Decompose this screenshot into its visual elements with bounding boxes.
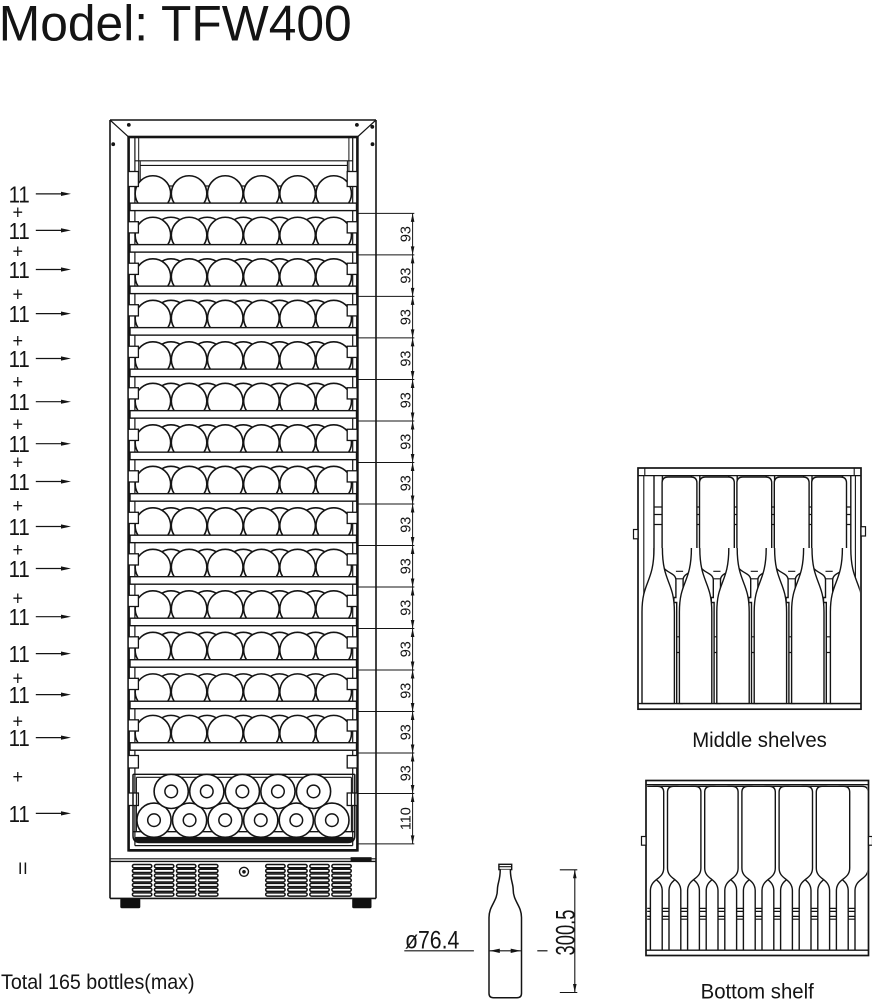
svg-text:93: 93 — [398, 600, 414, 616]
svg-text:93: 93 — [398, 392, 414, 408]
svg-text:Model: TFW400: Model: TFW400 — [0, 0, 352, 51]
svg-text:+: + — [13, 370, 24, 392]
svg-text:93: 93 — [398, 558, 414, 574]
svg-text:Total 165 bottles(max): Total 165 bottles(max) — [1, 970, 195, 994]
svg-text:+: + — [13, 710, 24, 732]
svg-text:93: 93 — [398, 268, 414, 284]
svg-text:93: 93 — [398, 309, 414, 325]
svg-text:11: 11 — [9, 641, 30, 668]
svg-text:+: + — [13, 330, 24, 352]
svg-text:+: + — [13, 538, 24, 560]
svg-text:Bottom shelf: Bottom shelf — [701, 980, 814, 1000]
svg-text:11: 11 — [9, 301, 30, 328]
svg-text:+: + — [13, 587, 24, 609]
svg-text:11: 11 — [9, 801, 30, 828]
svg-text:93: 93 — [398, 226, 414, 242]
svg-text:300.5: 300.5 — [550, 910, 580, 956]
svg-text:93: 93 — [398, 765, 414, 781]
svg-text:Middle shelves: Middle shelves — [692, 729, 827, 752]
svg-text:93: 93 — [398, 641, 414, 657]
svg-text:+: + — [13, 765, 24, 787]
svg-text:+: + — [13, 283, 24, 305]
svg-text:ø76.4: ø76.4 — [405, 926, 459, 954]
svg-text:+: + — [13, 451, 24, 473]
svg-text:+: + — [13, 494, 24, 516]
svg-text:11: 11 — [9, 514, 30, 541]
svg-text:+: + — [13, 413, 24, 435]
svg-text:11: 11 — [9, 469, 30, 496]
svg-text:93: 93 — [398, 683, 414, 699]
svg-text:93: 93 — [398, 724, 414, 740]
svg-text:+: + — [13, 667, 24, 689]
svg-text:11: 11 — [9, 389, 30, 416]
svg-text:93: 93 — [398, 517, 414, 533]
svg-text:+: + — [13, 201, 24, 223]
svg-text:93: 93 — [398, 475, 414, 491]
svg-text:+: + — [13, 240, 24, 262]
svg-text:93: 93 — [398, 351, 414, 367]
svg-text:110: 110 — [398, 807, 414, 830]
svg-text:93: 93 — [398, 434, 414, 450]
